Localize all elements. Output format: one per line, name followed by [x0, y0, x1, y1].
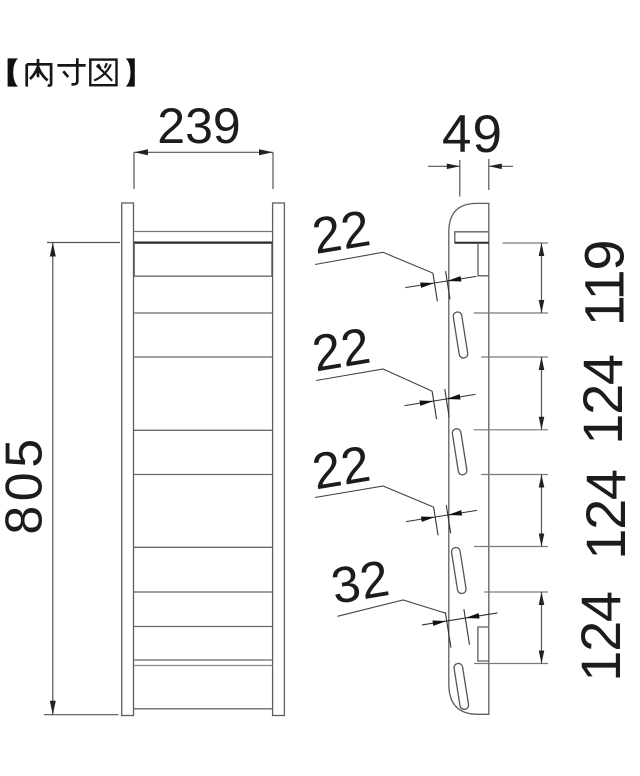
svg-text:119: 119 [572, 241, 635, 326]
svg-text:124: 124 [569, 592, 632, 682]
svg-text:22: 22 [308, 317, 374, 383]
svg-text:805: 805 [0, 434, 54, 534]
svg-text:49: 49 [442, 105, 503, 164]
svg-text:22: 22 [308, 435, 374, 501]
svg-text:22: 22 [308, 199, 374, 265]
svg-text:32: 32 [327, 549, 393, 615]
svg-text:124: 124 [571, 355, 634, 445]
svg-text:239: 239 [157, 98, 240, 154]
svg-text:124: 124 [574, 470, 637, 560]
